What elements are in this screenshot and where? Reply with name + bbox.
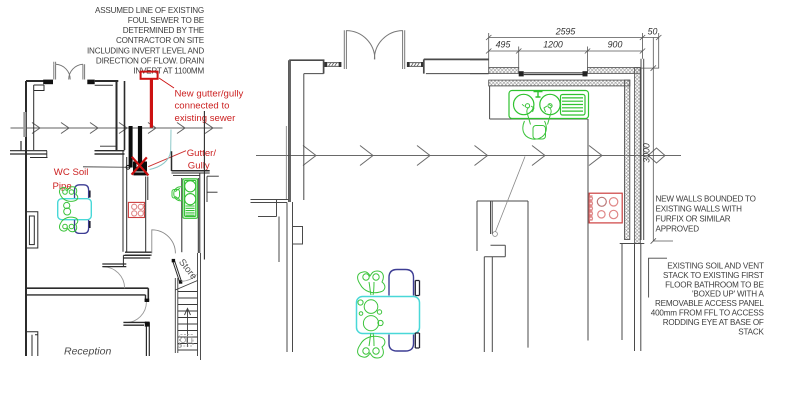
svg-text:Reception: Reception [64, 346, 111, 358]
svg-text:DIRECTION OF FLOW. DRAIN: DIRECTION OF FLOW. DRAIN [96, 56, 204, 65]
svg-text:Gully: Gully [188, 160, 210, 171]
svg-text:FLOOR BATHROOM TO BE: FLOOR BATHROOM TO BE [665, 280, 764, 289]
svg-text:existing sewer: existing sewer [175, 113, 237, 124]
svg-text:Store: Store [176, 257, 199, 282]
svg-text:NEW WALLS BOUNDED TO: NEW WALLS BOUNDED TO [656, 195, 756, 204]
svg-text:EXISTING SOIL AND VENT: EXISTING SOIL AND VENT [667, 262, 764, 271]
svg-text:RODDING EYE AT BASE OF: RODDING EYE AT BASE OF [663, 318, 764, 327]
svg-text:Pipe: Pipe [53, 181, 72, 192]
svg-text:ASSUMED LINE OF EXISTING: ASSUMED LINE OF EXISTING [95, 6, 204, 15]
svg-text:CONTRACTOR ON SITE: CONTRACTOR ON SITE [116, 36, 205, 45]
svg-text:WC Soil: WC Soil [54, 167, 89, 178]
svg-text:1200: 1200 [543, 40, 563, 50]
svg-text:STACK TO EXISTING FIRST: STACK TO EXISTING FIRST [663, 271, 764, 280]
svg-text:2595: 2595 [555, 27, 576, 37]
svg-text:495: 495 [496, 40, 511, 50]
svg-text:3000: 3000 [642, 143, 652, 163]
svg-text:New gutter/gully: New gutter/gully [175, 89, 244, 100]
svg-text:connected to: connected to [175, 101, 230, 112]
svg-text:'BOXED UP' WITH A: 'BOXED UP' WITH A [692, 290, 764, 299]
svg-text:APPROVED: APPROVED [656, 225, 700, 234]
svg-text:Gutter/: Gutter/ [187, 148, 217, 159]
svg-text:EXISTING WALLS WITH: EXISTING WALLS WITH [656, 205, 743, 214]
svg-text:DETERMINED BY THE: DETERMINED BY THE [123, 26, 205, 35]
svg-text:INCLUDING INVERT LEVEL AND: INCLUDING INVERT LEVEL AND [87, 46, 204, 55]
svg-text:STACK: STACK [738, 327, 764, 336]
svg-text:400mm FROM FFL TO ACCESS: 400mm FROM FFL TO ACCESS [651, 309, 765, 318]
svg-text:FURFIX OR SIMILAR: FURFIX OR SIMILAR [656, 215, 731, 224]
svg-text:REMOVABLE ACCESS PANEL: REMOVABLE ACCESS PANEL [655, 299, 764, 308]
svg-text:900: 900 [608, 40, 623, 50]
svg-text:50: 50 [648, 27, 658, 37]
svg-text:FOUL SEWER TO BE: FOUL SEWER TO BE [128, 16, 205, 25]
